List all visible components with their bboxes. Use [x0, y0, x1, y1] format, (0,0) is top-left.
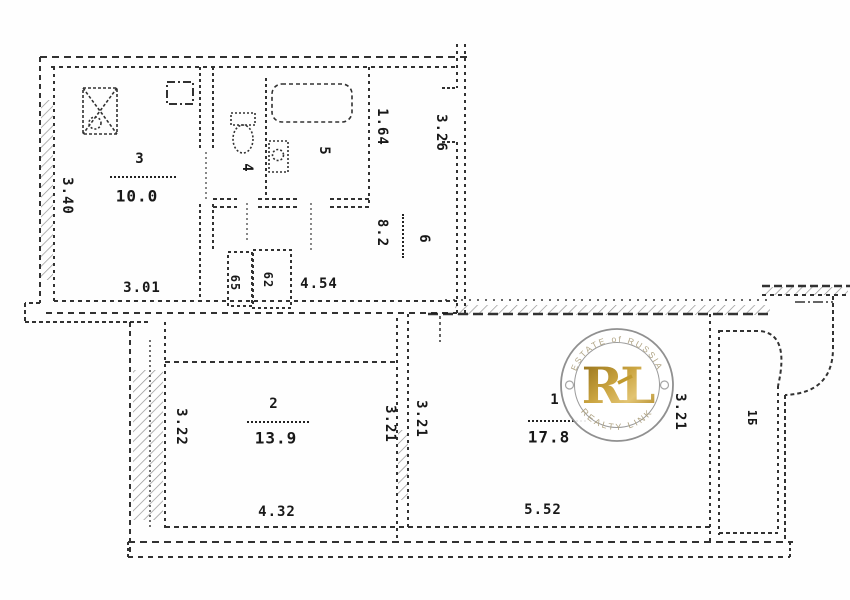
- dim-closet-right: 62: [261, 272, 275, 288]
- room-2-number: 2: [269, 396, 278, 412]
- wall-bottom-caps: [128, 542, 790, 557]
- wall-hatching: [41, 100, 848, 520]
- room-hallway-area: 8.2: [374, 219, 390, 247]
- dim-closet-left: 65: [228, 275, 242, 291]
- hatch-kitchen-left: [41, 100, 53, 280]
- kitchen-sink-icon: [83, 88, 117, 134]
- dim-room2-right: 3.21: [382, 405, 398, 443]
- bathtub-icon: [272, 84, 352, 122]
- dim-hall-top: 1.64: [374, 108, 390, 146]
- watermark-monogram: RL: [582, 356, 656, 415]
- room-kitchen-number: 3: [135, 151, 144, 167]
- door-leaves: [206, 152, 311, 253]
- room-2-area: 13.9: [255, 429, 298, 448]
- toilet-icon: [231, 113, 255, 153]
- hatch-divider: [398, 430, 408, 500]
- walls-layer: [0, 0, 850, 600]
- dim-room1-bottom: 5.52: [524, 502, 562, 518]
- room-balcony-label: 1Б: [745, 410, 759, 426]
- dim-kitchen-width: 3.40: [59, 177, 75, 215]
- dim-room2-left: 3.22: [173, 408, 189, 446]
- realty-watermark: ESTATE of RUSSIA REALTY LINK RL: [558, 326, 676, 444]
- hatch-lower-left: [133, 370, 163, 520]
- dim-hall-side: 3.26: [433, 114, 449, 152]
- room-kitchen-area: 10.0: [116, 187, 159, 206]
- dim-room1-left: 3.21: [413, 400, 429, 438]
- room-bathroom-number: 5: [316, 146, 332, 155]
- dim-hall-width: 4.54: [300, 276, 338, 292]
- room-2-separator: [247, 421, 309, 423]
- hatch-topright: [763, 287, 848, 295]
- walls-lower-section: [128, 286, 850, 557]
- walls-upper-section: [25, 44, 467, 322]
- wall-balcony-outer-curve: [785, 296, 833, 541]
- hatch-room1-top: [455, 305, 770, 315]
- dim-kitchen-length: 3.01: [123, 280, 161, 296]
- room-kitchen-separator: [110, 176, 176, 178]
- vent-shaft-icon: [167, 82, 193, 104]
- wall-left-step: [25, 303, 148, 322]
- washbasin-icon: [269, 141, 288, 172]
- fixtures: [83, 84, 352, 172]
- room-wc-number: 4: [239, 163, 255, 172]
- wall-balcony-top-inner: [719, 331, 781, 386]
- room-hallway-number: 6: [416, 234, 432, 243]
- dim-room2-bottom: 4.32: [258, 504, 296, 520]
- room-hallway-separator: [402, 214, 404, 258]
- floor-plan: 3 10.0 3.40 3.01 4 5 1.64 3.26 6 8.2 65 …: [0, 0, 850, 600]
